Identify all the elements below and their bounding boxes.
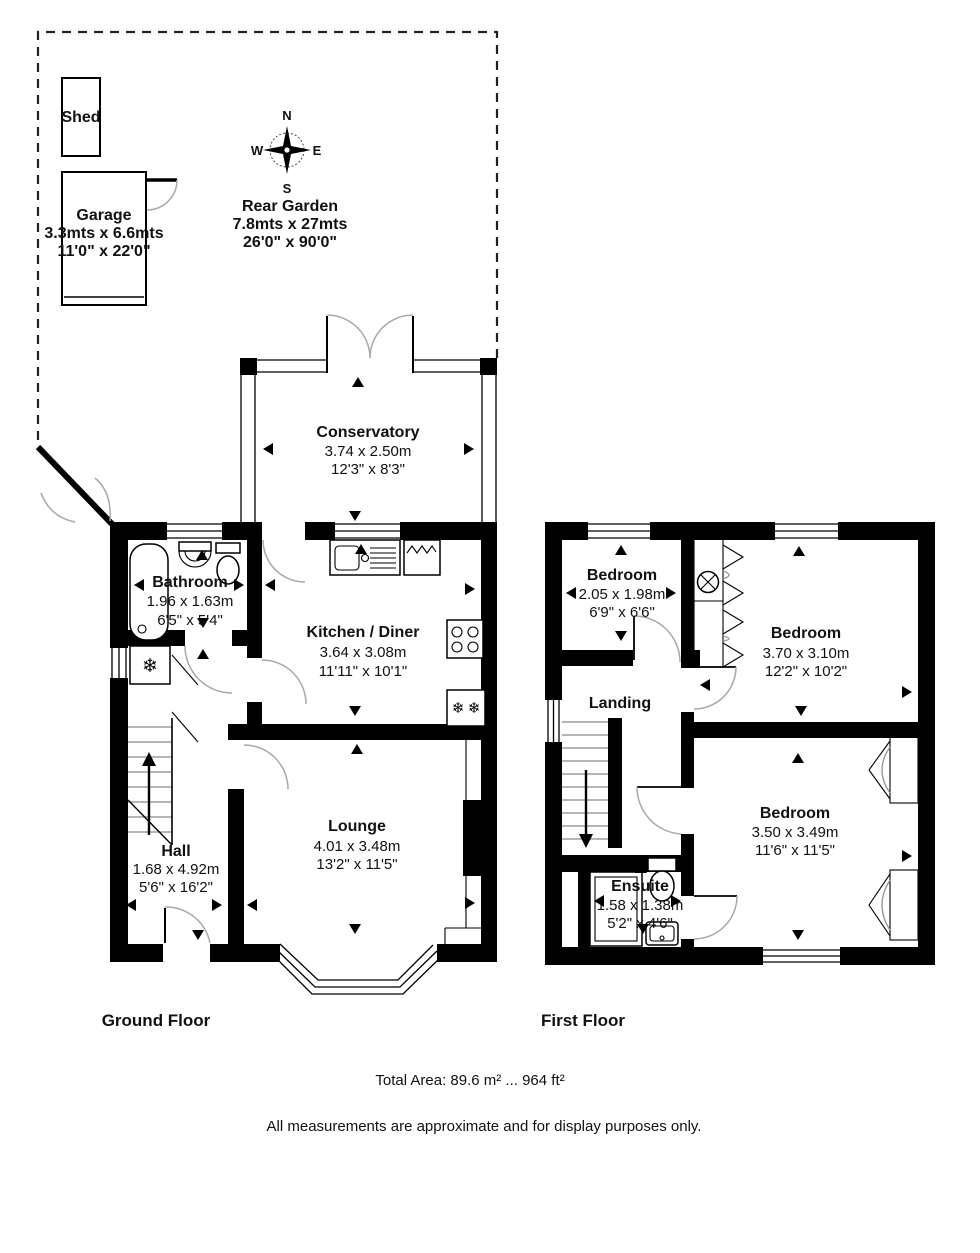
bedroom-rear-name: Bedroom: [771, 625, 841, 642]
compass-e: E: [313, 143, 322, 158]
bedroom-small-dim-metric: 2.05 x 1.98m: [579, 586, 666, 603]
conservatory-name: Conservatory: [316, 424, 419, 441]
shed-label: Shed: [61, 109, 100, 126]
front-door-arc: [165, 907, 210, 943]
garage-dim-imperial: 11'0" x 22'0": [57, 243, 150, 260]
bedroom-front-window: [763, 950, 840, 962]
garage-door-arc: [147, 180, 177, 210]
kitchen-name: Kitchen / Diner: [307, 624, 420, 641]
understairs-cupboard-marks: [172, 655, 198, 742]
bedroom-front-wardrobes: [869, 737, 918, 940]
bathroom-window: [167, 524, 222, 538]
hall-dim-imperial: 5'6" x 16'2": [139, 879, 213, 896]
plan-footer: Ground Floor First Floor Total Area: 89.…: [102, 1011, 702, 1135]
conservatory-dim-metric: 3.74 x 2.50m: [325, 443, 412, 460]
conservatory-label: Conservatory 3.74 x 2.50m 12'3" x 8'3": [316, 424, 419, 478]
rear-garden-name: Rear Garden: [242, 198, 338, 215]
hanging-rail-icon: [869, 874, 890, 936]
freezer-icon: ❄: [452, 700, 465, 717]
hall-label: Hall 1.68 x 4.92m 5'6" x 16'2": [133, 843, 220, 896]
fridge-icon: ❄: [142, 656, 158, 677]
compass-icon: N S W E: [251, 108, 322, 196]
bathroom-dim-imperial: 6'5" x 5'4": [157, 612, 223, 629]
ensuite-dim-metric: 1.58 x 1.38m: [597, 897, 684, 914]
bedroom-small-label: Bedroom 2.05 x 1.98m 6'9" x 6'6": [579, 567, 666, 621]
ensuite-door-arc: [694, 896, 737, 939]
french-door-arc-left: [327, 315, 370, 358]
first-floor-plan: Bedroom 2.05 x 1.98m 6'9" x 6'6" Bedroom…: [545, 522, 935, 965]
bathroom-name: Bathroom: [152, 574, 228, 591]
bedroom-rear-dim-metric: 3.70 x 3.10m: [763, 645, 850, 662]
hall-kitchen-door-arc: [262, 660, 306, 704]
bedroom-rear-door-arc: [694, 667, 736, 709]
ensuite-toilet-cistern: [648, 858, 676, 871]
ensuite-dim-imperial: 5'2" x 4'6": [607, 915, 673, 932]
hob: [447, 620, 483, 658]
bedroom-front-label: Bedroom 3.50 x 3.49m 11'6" x 11'5": [752, 805, 839, 859]
garage-name: Garage: [76, 207, 131, 224]
landing-window: [548, 700, 559, 742]
chimney-breast: [463, 800, 497, 876]
hall-window: [112, 648, 126, 678]
floorplan-canvas: Shed Garage 3.3mts x 6.6mts 11'0" x 22'0…: [0, 0, 980, 1253]
disclaimer-text: All measurements are approximate and for…: [267, 1118, 702, 1135]
lounge-dim-imperial: 13'2" x 11'5": [316, 856, 397, 873]
bedroom-small-door-arc: [634, 616, 680, 662]
bedroom-front-dim-metric: 3.50 x 3.49m: [752, 824, 839, 841]
conservatory-kitchen-door-arc: [263, 540, 305, 582]
kitchen-dim-metric: 3.64 x 3.08m: [320, 644, 407, 661]
hall-dim-metric: 1.68 x 4.92m: [133, 861, 220, 878]
bay-window: [278, 951, 437, 987]
bedroom-small-dim-imperial: 6'9" x 6'6": [589, 604, 655, 621]
kitchen-dim-imperial: 11'11" x 10'1": [319, 663, 407, 680]
hall-fixtures: ❄: [130, 646, 170, 684]
hall-name: Hall: [161, 843, 190, 860]
garage-dim-metric: 3.3mts x 6.6mts: [44, 225, 163, 242]
ground-floor-title: Ground Floor: [102, 1011, 211, 1030]
bedroom-front-name: Bedroom: [760, 805, 830, 822]
bedroom-rear-window: [775, 524, 838, 538]
kitchen-window: [335, 524, 400, 538]
toilet-cistern: [216, 543, 240, 553]
lounge-name: Lounge: [328, 818, 386, 835]
side-passage-wall: [38, 447, 112, 524]
compass-n: N: [282, 108, 291, 123]
compass-w: W: [251, 143, 264, 158]
bathroom-label: Bathroom 1.96 x 1.63m 6'5" x 5'4": [147, 574, 234, 629]
landing-name: Landing: [589, 695, 651, 712]
french-door-arc-right: [370, 315, 413, 358]
ground-floor-plan: ❄ ❄ ❄ Conservatory 3.74 x 2.50m 12'3" x …: [110, 315, 497, 994]
bedroom-small-name: Bedroom: [587, 567, 657, 584]
bedroom-small-window: [588, 524, 650, 538]
lounge-dim-metric: 4.01 x 3.48m: [314, 838, 401, 855]
first-floor-title: First Floor: [541, 1011, 625, 1030]
bedroom-rear-wardrobe: [694, 538, 743, 667]
bathroom-dim-metric: 1.96 x 1.63m: [147, 593, 234, 610]
hanging-rail-icon: [723, 545, 743, 667]
bedroom-front-door-arc: [637, 787, 681, 834]
hanging-rail-icon: [869, 741, 890, 799]
rear-garden-label: Rear Garden 7.8mts x 27mts 26'0" x 90'0": [233, 198, 348, 251]
bedroom-rear-dim-imperial: 12'2" x 10'2": [765, 663, 847, 680]
freezer-icon: ❄: [468, 700, 481, 717]
lounge-label: Lounge 4.01 x 3.48m 13'2" x 11'5": [314, 818, 401, 873]
shed: Shed: [61, 78, 100, 156]
hall-lounge-door-arc: [244, 745, 288, 789]
conservatory-dim-imperial: 12'3" x 8'3": [331, 461, 405, 478]
rear-garden-dim-metric: 7.8mts x 27mts: [233, 216, 348, 233]
bedroom-front-dim-imperial: 11'6" x 11'5": [755, 842, 835, 859]
ensuite-name: Ensuite: [611, 878, 669, 895]
total-area-text: Total Area: 89.6 m² ... 964 ft²: [375, 1072, 564, 1089]
garage: Garage 3.3mts x 6.6mts 11'0" x 22'0": [44, 172, 177, 305]
landing-label: Landing: [589, 695, 651, 712]
rear-garden-dim-imperial: 26'0" x 90'0": [243, 234, 337, 251]
basin-bracket: [179, 542, 211, 551]
floorplan-page: Shed Garage 3.3mts x 6.6mts 11'0" x 22'0…: [0, 0, 980, 1253]
ff-stairs: [562, 722, 608, 848]
stairs-up-arrow-head: [142, 752, 156, 766]
kitchen-label: Kitchen / Diner 3.64 x 3.08m 11'11" x 10…: [307, 624, 420, 680]
compass-s: S: [283, 181, 292, 196]
bathroom-door-arc: [185, 646, 232, 693]
conservatory-structure: [240, 315, 497, 522]
bedroom-rear-label: Bedroom 3.70 x 3.10m 12'2" x 10'2": [763, 625, 850, 680]
stairs-down-arrow-head: [579, 834, 593, 848]
side-gate-arc: [41, 493, 75, 522]
